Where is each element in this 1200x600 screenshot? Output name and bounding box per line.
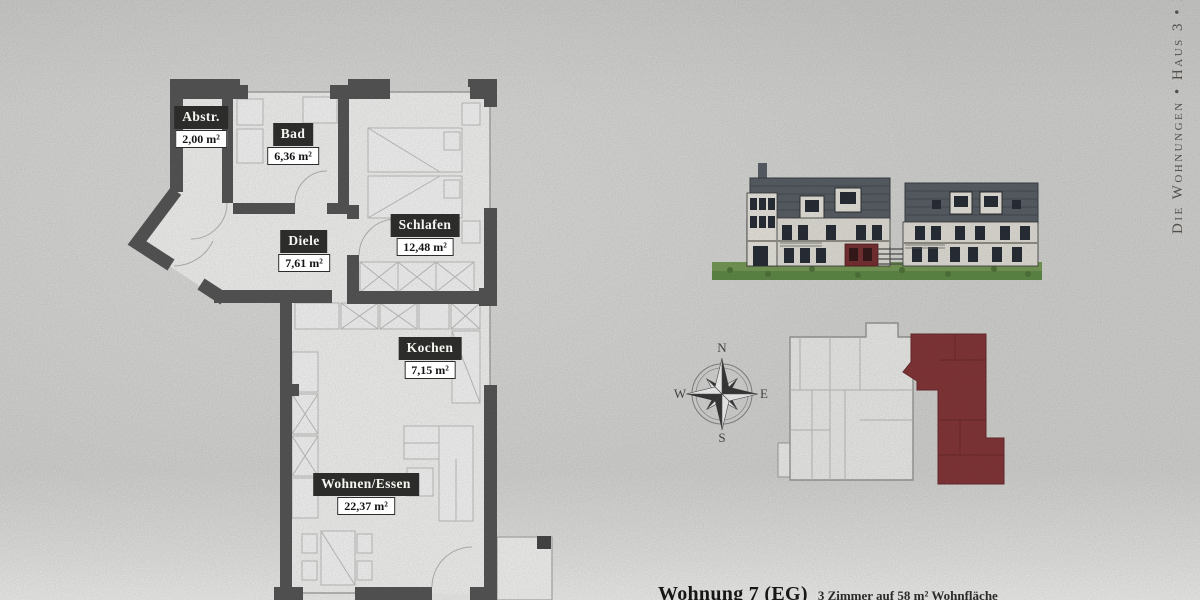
room-name: Kochen — [400, 338, 461, 359]
room-area: 2,00 m² — [175, 130, 227, 148]
terrace-pillar — [537, 536, 551, 549]
overview-building-outline — [790, 323, 913, 480]
room-name: Schlafen — [392, 215, 459, 236]
room-area: 12,48 m² — [396, 238, 454, 256]
room-name: Wohnen/Essen — [314, 474, 418, 495]
apartment-title: Wohnung 7 (EG) — [658, 583, 808, 600]
terrace — [497, 536, 552, 600]
room-label-diele: Diele 7,61 m² — [278, 231, 330, 272]
room-area: 22,37 m² — [337, 497, 395, 515]
compass-north-label: N — [717, 340, 727, 355]
compass-west-label: W — [674, 386, 687, 401]
room-label-schlafen: Schlafen 12,48 m² — [392, 215, 459, 256]
room-name: Diele — [281, 231, 326, 252]
room-area: 7,61 m² — [278, 254, 330, 272]
sheet-margin-text: Die Wohnungen • Haus 3 • E — [1170, 0, 1187, 234]
floorplan-sheet: N E S W — [0, 0, 1200, 600]
left-building — [747, 163, 890, 266]
room-label-abstr: Abstr. 2,00 m² — [175, 107, 227, 148]
compass-cardinal-points — [686, 358, 758, 430]
right-building — [903, 183, 1038, 266]
room-label-bad: Bad 6,36 m² — [267, 124, 319, 165]
compass-south-label: S — [718, 430, 725, 445]
building-elevation — [712, 163, 1042, 280]
room-label-kochen: Kochen 7,15 m² — [400, 338, 461, 379]
overview-plan — [778, 323, 1004, 484]
room-label-wohnen-essen: Wohnen/Essen 22,37 m² — [314, 474, 418, 515]
room-area: 6,36 m² — [267, 147, 319, 165]
compass-rose: N E S W — [674, 340, 768, 445]
scene-drawing: N E S W — [0, 0, 1200, 600]
highlighted-unit-elevation — [845, 244, 878, 266]
room-area: 7,15 m² — [404, 361, 456, 379]
sheet-footer: Wohnung 7 (EG) 3 Zimmer auf 58 m² Wohnfl… — [658, 583, 998, 600]
compass-east-label: E — [760, 386, 768, 401]
main-floor-plan — [136, 79, 552, 600]
room-name: Abstr. — [175, 107, 227, 128]
room-name: Bad — [274, 124, 312, 145]
bedroom-closets — [360, 262, 474, 292]
apartment-subtitle: 3 Zimmer auf 58 m² Wohnfläche — [818, 588, 998, 600]
highlighted-unit-overview — [903, 334, 1004, 484]
